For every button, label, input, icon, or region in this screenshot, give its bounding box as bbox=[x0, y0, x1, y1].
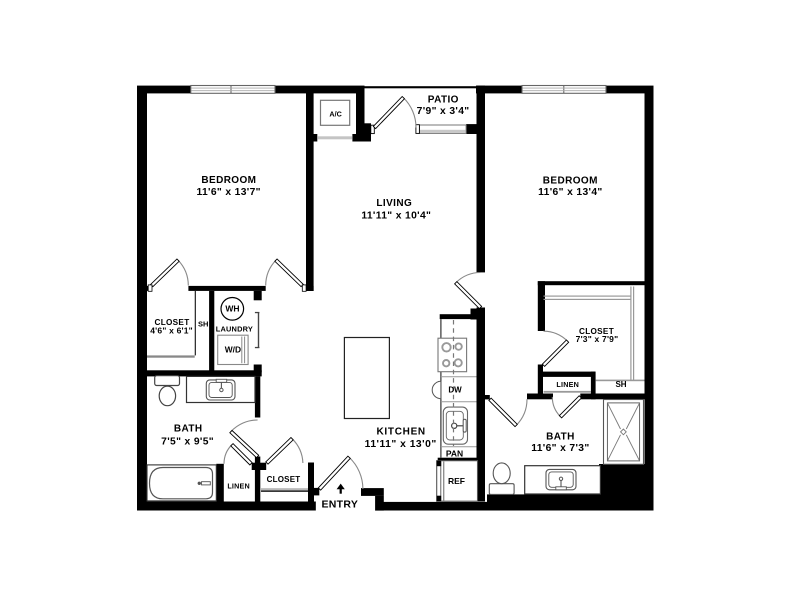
svg-text:ENTRY: ENTRY bbox=[321, 498, 358, 510]
svg-text:DW: DW bbox=[448, 385, 462, 394]
svg-text:BATH: BATH bbox=[546, 431, 575, 442]
svg-text:SH: SH bbox=[615, 380, 626, 389]
svg-text:LAUNDRY: LAUNDRY bbox=[216, 325, 253, 334]
svg-text:PATIO: PATIO bbox=[428, 95, 459, 106]
svg-text:11'11" x 13'0": 11'11" x 13'0" bbox=[365, 439, 437, 450]
svg-text:W/D: W/D bbox=[225, 344, 241, 354]
svg-text:WH: WH bbox=[225, 304, 239, 314]
svg-text:11'6" x 13'4": 11'6" x 13'4" bbox=[538, 187, 602, 198]
svg-text:4'6" x 6'1": 4'6" x 6'1" bbox=[150, 326, 193, 336]
svg-text:7'3" x 7'9": 7'3" x 7'9" bbox=[576, 334, 619, 344]
svg-text:SH: SH bbox=[198, 320, 208, 329]
svg-text:BEDROOM: BEDROOM bbox=[543, 175, 598, 186]
svg-text:LINEN: LINEN bbox=[556, 380, 579, 389]
svg-text:LINEN: LINEN bbox=[227, 481, 250, 490]
svg-text:11'6" x 13'7": 11'6" x 13'7" bbox=[196, 187, 260, 198]
svg-text:KITCHEN: KITCHEN bbox=[377, 426, 426, 437]
svg-text:11'11" x 10'4": 11'11" x 10'4" bbox=[361, 211, 431, 222]
svg-text:7'9" x 3'4": 7'9" x 3'4" bbox=[417, 106, 470, 117]
svg-text:BATH: BATH bbox=[174, 423, 203, 434]
svg-text:REF: REF bbox=[448, 476, 465, 486]
svg-text:LIVING: LIVING bbox=[376, 198, 412, 209]
svg-text:BEDROOM: BEDROOM bbox=[201, 175, 256, 186]
svg-text:PAN: PAN bbox=[446, 448, 463, 458]
svg-text:11'6" x 7'3": 11'6" x 7'3" bbox=[531, 443, 589, 454]
svg-text:7'5" x 9'5": 7'5" x 9'5" bbox=[161, 436, 214, 447]
svg-text:CLOSET: CLOSET bbox=[267, 475, 301, 484]
svg-text:A/C: A/C bbox=[329, 109, 341, 118]
